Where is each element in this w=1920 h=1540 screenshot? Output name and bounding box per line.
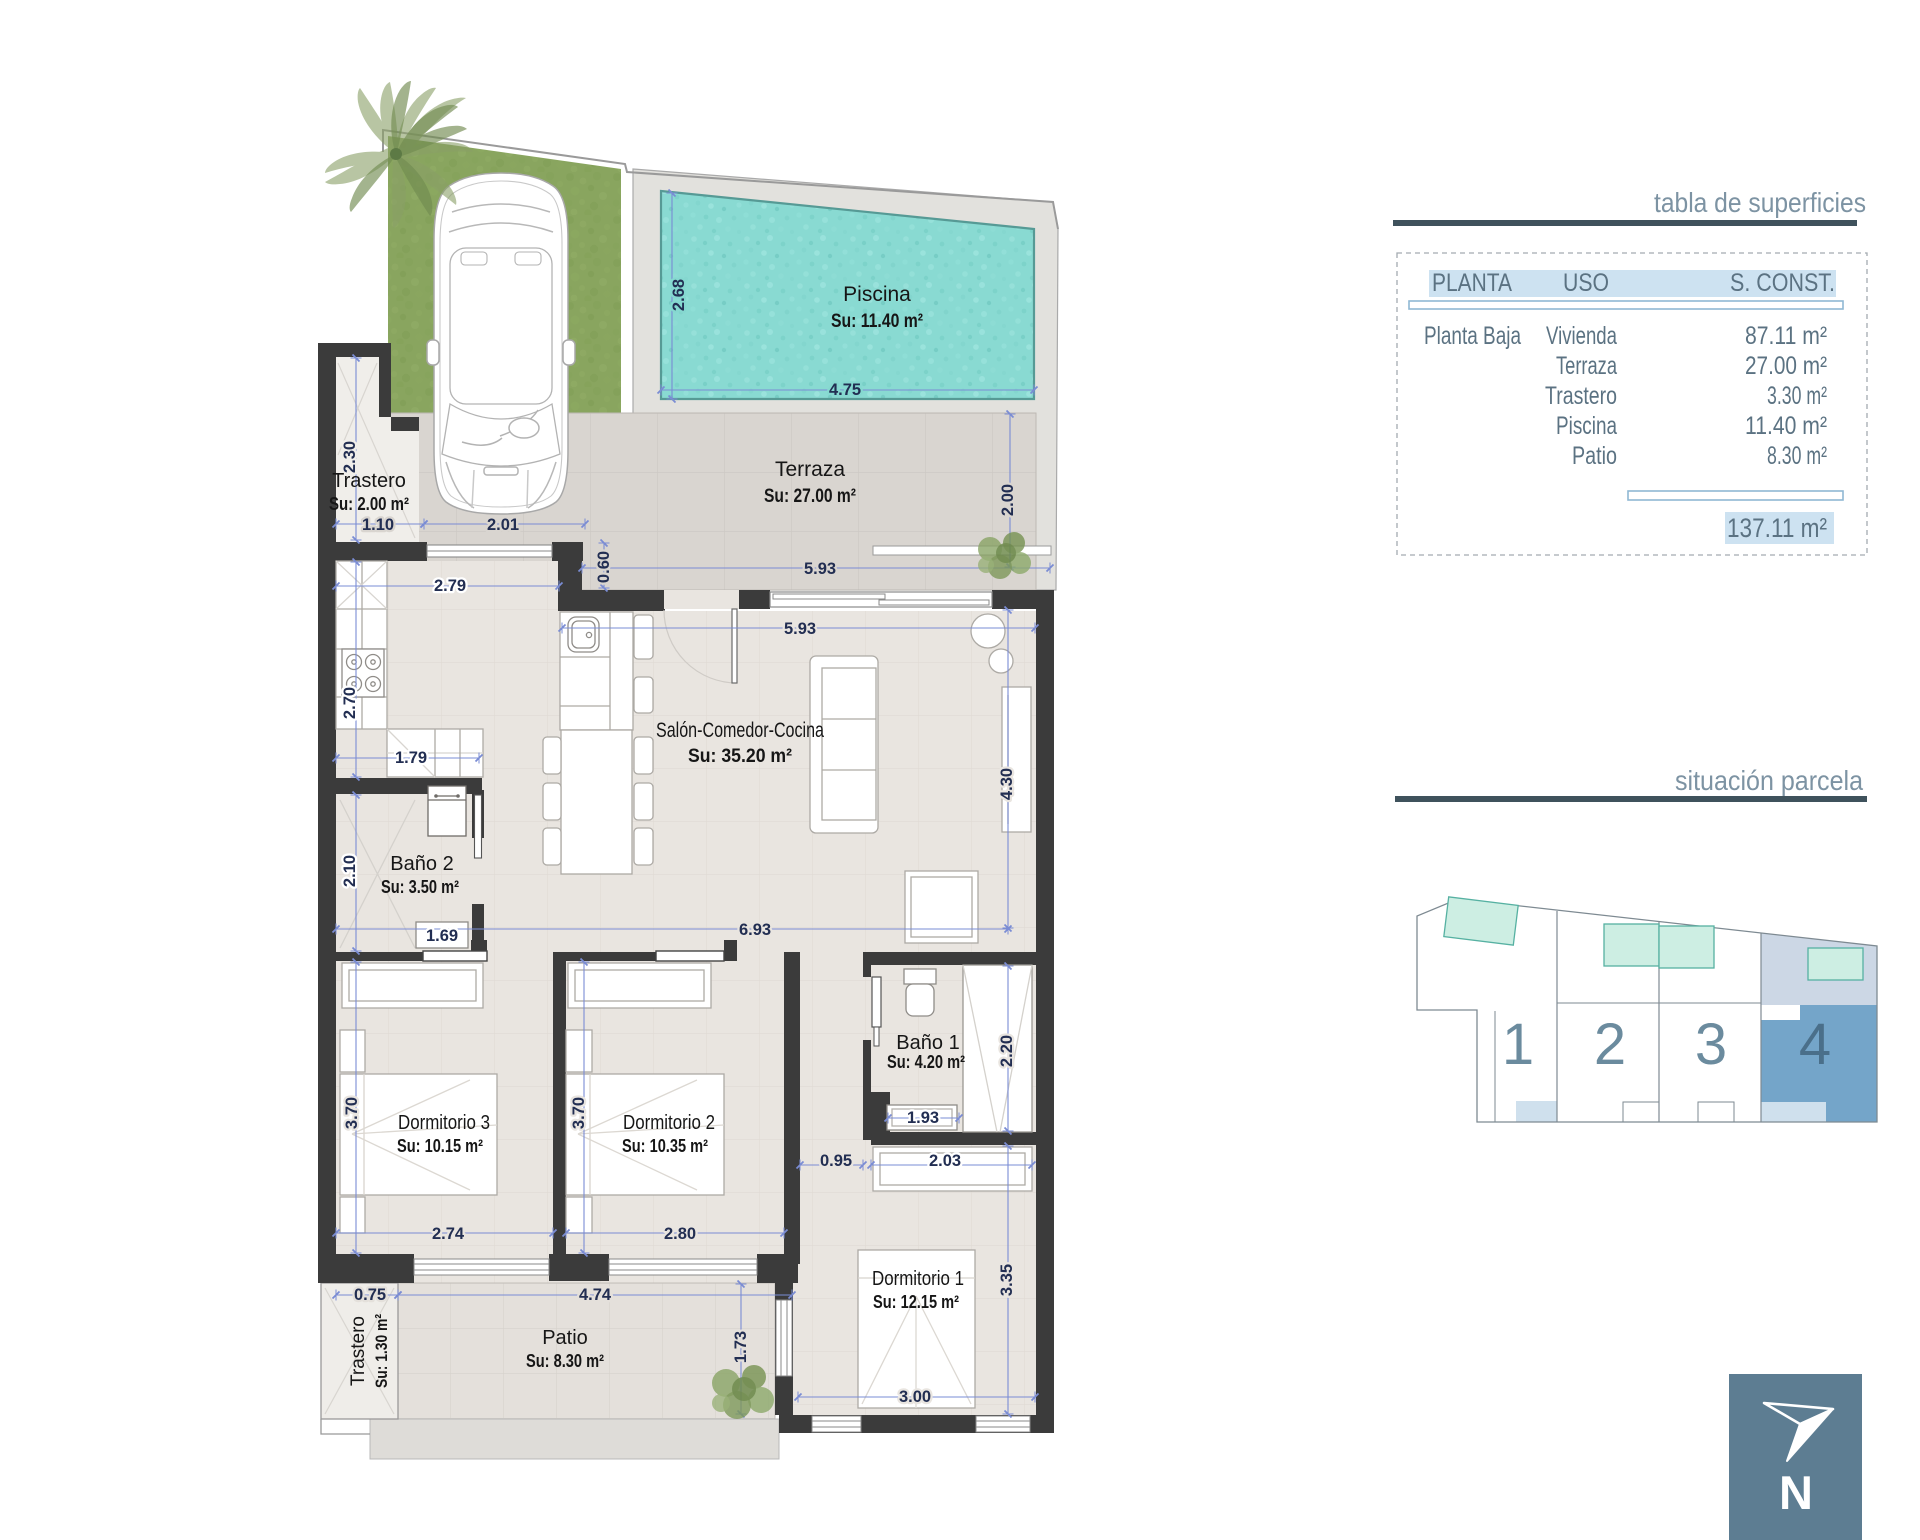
- svg-text:3.70: 3.70: [570, 1097, 588, 1129]
- svg-text:Su: 35.20 m²: Su: 35.20 m²: [688, 746, 792, 767]
- svg-text:Trastero: Trastero: [1545, 382, 1617, 410]
- svg-text:Piscina: Piscina: [1556, 412, 1617, 440]
- svg-text:Dormitorio 2: Dormitorio 2: [623, 1112, 715, 1134]
- svg-text:87.11 m²: 87.11 m²: [1745, 322, 1827, 350]
- svg-text:2.74: 2.74: [432, 1225, 465, 1243]
- svg-text:4.74: 4.74: [579, 1286, 612, 1304]
- svg-text:Su: 10.15 m²: Su: 10.15 m²: [397, 1136, 483, 1156]
- svg-text:2.00: 2.00: [999, 484, 1017, 516]
- svg-text:11.40 m²: 11.40 m²: [1745, 412, 1827, 440]
- svg-text:N: N: [1779, 1466, 1813, 1519]
- svg-text:3.00: 3.00: [899, 1388, 931, 1406]
- svg-text:Su: 3.50 m²: Su: 3.50 m²: [381, 877, 459, 897]
- svg-text:Salón-Comedor-Cocina: Salón-Comedor-Cocina: [656, 719, 824, 742]
- svg-text:5.93: 5.93: [784, 620, 816, 638]
- svg-text:27.00 m²: 27.00 m²: [1745, 352, 1827, 380]
- svg-text:8.30 m²: 8.30 m²: [1767, 442, 1827, 470]
- svg-text:2.68: 2.68: [670, 279, 688, 311]
- svg-text:0.95: 0.95: [820, 1152, 852, 1170]
- svg-text:6.93: 6.93: [739, 921, 771, 939]
- svg-text:2: 2: [1594, 1012, 1626, 1077]
- svg-text:Su: 11.40 m²: Su: 11.40 m²: [831, 311, 923, 332]
- svg-text:USO: USO: [1563, 269, 1609, 297]
- svg-text:3.70: 3.70: [343, 1097, 361, 1129]
- svg-text:Patio: Patio: [1572, 442, 1617, 470]
- svg-text:Planta Baja: Planta Baja: [1424, 322, 1521, 350]
- svg-text:3.30 m²: 3.30 m²: [1767, 382, 1827, 410]
- svg-text:1.69: 1.69: [426, 927, 458, 945]
- svg-text:Su: 2.00 m²: Su: 2.00 m²: [329, 494, 409, 514]
- svg-text:Vivienda: Vivienda: [1546, 322, 1617, 350]
- svg-text:Su: 12.15 m²: Su: 12.15 m²: [873, 1292, 959, 1312]
- svg-text:PLANTA: PLANTA: [1432, 269, 1512, 297]
- svg-text:S. CONST.: S. CONST.: [1730, 269, 1835, 297]
- svg-text:Piscina: Piscina: [843, 283, 911, 306]
- svg-text:Su: 1.30 m²: Su: 1.30 m²: [372, 1314, 391, 1388]
- svg-text:2.10: 2.10: [341, 855, 359, 887]
- svg-text:0.60: 0.60: [595, 551, 613, 583]
- svg-text:Dormitorio 3: Dormitorio 3: [398, 1112, 490, 1134]
- svg-text:1.73: 1.73: [732, 1331, 750, 1363]
- svg-text:Dormitorio 1: Dormitorio 1: [872, 1268, 964, 1290]
- svg-text:1.93: 1.93: [907, 1109, 939, 1127]
- svg-text:2.20: 2.20: [998, 1035, 1016, 1067]
- svg-text:2.70: 2.70: [341, 687, 359, 719]
- svg-text:4: 4: [1799, 1012, 1831, 1077]
- svg-text:Trastero: Trastero: [332, 470, 406, 492]
- svg-text:Terraza: Terraza: [775, 458, 845, 481]
- svg-text:4.75: 4.75: [829, 381, 861, 399]
- svg-text:Su: 8.30 m²: Su: 8.30 m²: [526, 1351, 604, 1371]
- svg-text:2.79: 2.79: [434, 577, 466, 595]
- svg-text:2.01: 2.01: [487, 516, 519, 534]
- svg-text:Trastero: Trastero: [348, 1316, 369, 1386]
- svg-text:situación parcela: situación parcela: [1675, 765, 1863, 796]
- svg-text:4.30: 4.30: [998, 768, 1016, 800]
- svg-text:1: 1: [1502, 1012, 1534, 1077]
- svg-text:0.75: 0.75: [354, 1286, 386, 1304]
- svg-text:3.35: 3.35: [998, 1264, 1016, 1296]
- svg-text:Patio: Patio: [542, 1327, 588, 1349]
- svg-text:Su: 27.00 m²: Su: 27.00 m²: [764, 486, 856, 507]
- svg-text:Baño 1: Baño 1: [896, 1032, 959, 1054]
- svg-text:Su: 4.20 m²: Su: 4.20 m²: [887, 1052, 965, 1072]
- svg-text:1.79: 1.79: [395, 749, 427, 767]
- svg-text:2.80: 2.80: [664, 1225, 696, 1243]
- svg-text:2.03: 2.03: [929, 1152, 961, 1170]
- svg-text:5.93: 5.93: [804, 560, 836, 578]
- svg-text:3: 3: [1695, 1012, 1727, 1077]
- svg-text:137.11 m²: 137.11 m²: [1727, 513, 1827, 543]
- svg-text:1.10: 1.10: [362, 516, 394, 534]
- svg-text:Su: 10.35 m²: Su: 10.35 m²: [622, 1136, 708, 1156]
- svg-text:Baño 2: Baño 2: [390, 853, 453, 875]
- svg-text:Terraza: Terraza: [1556, 352, 1617, 380]
- svg-text:tabla de superficies: tabla de superficies: [1654, 187, 1866, 218]
- svg-text:2.30: 2.30: [341, 441, 359, 473]
